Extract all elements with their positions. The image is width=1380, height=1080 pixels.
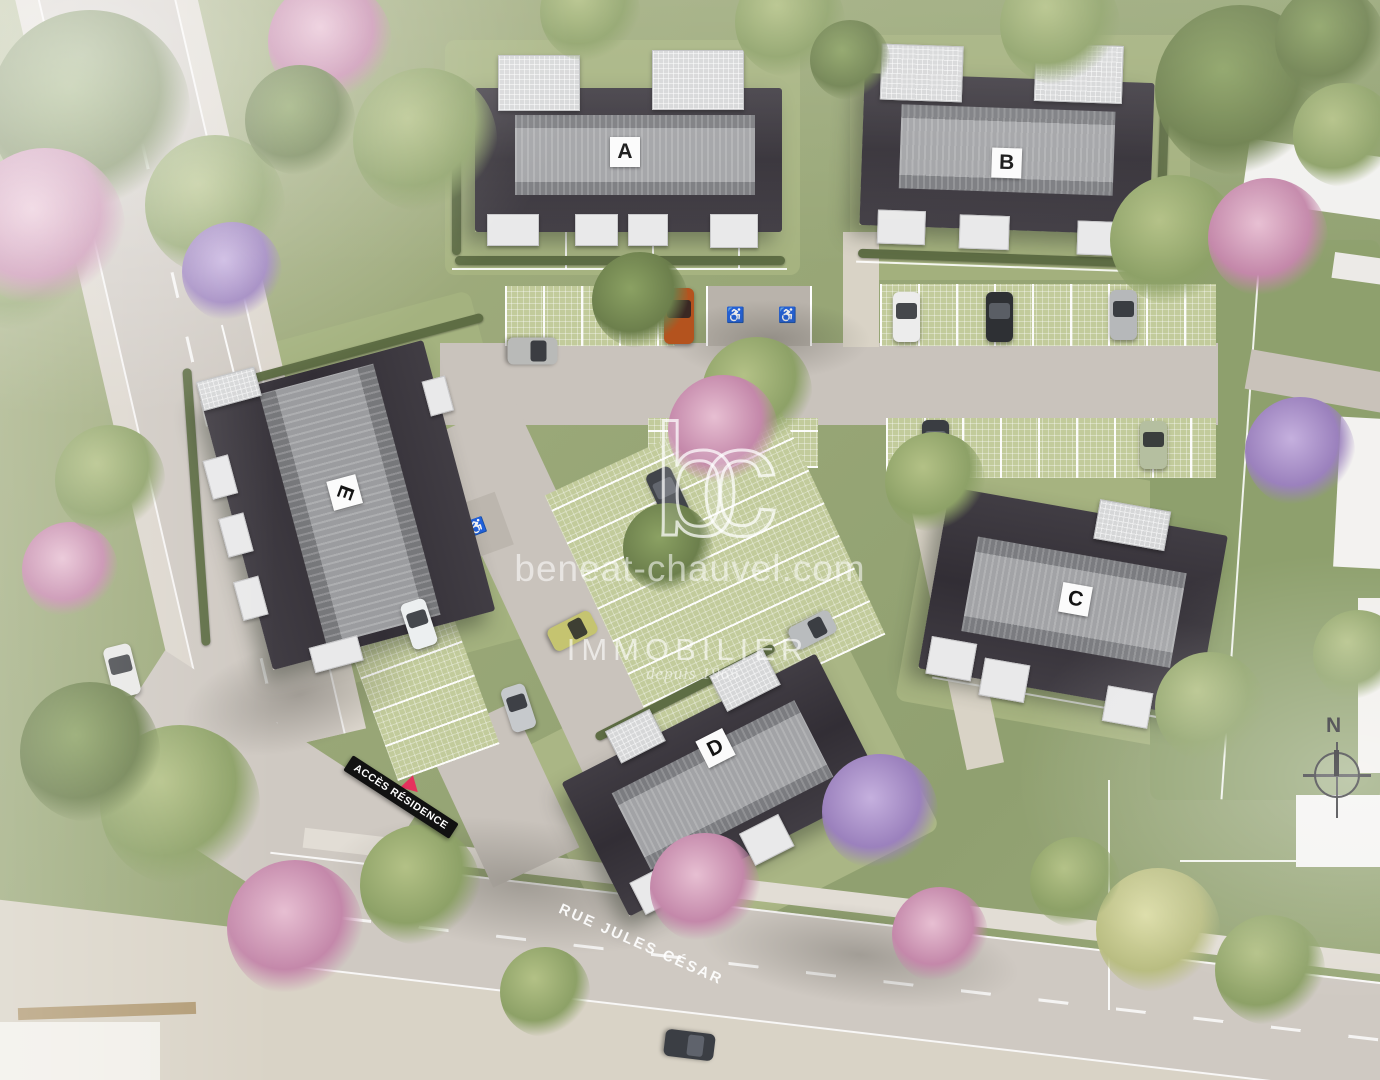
building-b: B bbox=[859, 73, 1154, 235]
tree bbox=[55, 425, 165, 535]
tree bbox=[650, 833, 760, 943]
tree bbox=[1245, 397, 1355, 507]
tree bbox=[20, 682, 160, 822]
building-c-label: C bbox=[1058, 582, 1093, 617]
tree bbox=[592, 252, 688, 348]
compass: N bbox=[1295, 710, 1380, 830]
tree bbox=[822, 754, 938, 870]
tree bbox=[360, 825, 480, 945]
tree bbox=[1030, 837, 1120, 927]
tree bbox=[353, 68, 497, 212]
tree bbox=[22, 522, 118, 618]
tree bbox=[885, 432, 985, 532]
tree bbox=[1208, 178, 1328, 298]
building-d-letter: D bbox=[703, 734, 727, 762]
tree bbox=[182, 222, 282, 322]
patio bbox=[628, 214, 668, 246]
neighbor-roof bbox=[0, 1022, 160, 1080]
building-a: A bbox=[475, 88, 782, 232]
building-e-letter: E bbox=[331, 482, 358, 503]
agency-brand-watermark: IMMOBILIER bbox=[488, 632, 888, 668]
tree bbox=[810, 20, 890, 100]
car bbox=[1140, 421, 1167, 469]
building-b-letter: B bbox=[999, 151, 1015, 176]
car bbox=[986, 292, 1013, 342]
tree bbox=[892, 887, 988, 983]
compass-north-label: N bbox=[1326, 714, 1341, 738]
tree bbox=[245, 65, 355, 175]
patio bbox=[575, 214, 618, 246]
tree bbox=[500, 947, 590, 1037]
tree bbox=[1215, 915, 1325, 1025]
building-a-letter: A bbox=[617, 140, 632, 164]
car bbox=[1110, 290, 1137, 340]
car bbox=[508, 338, 558, 365]
agency-logo: bc bbox=[590, 402, 800, 560]
car bbox=[893, 292, 920, 342]
patio bbox=[877, 210, 926, 246]
compass-needle bbox=[1334, 750, 1339, 776]
site-plan-rendering: ♿ ♿ ♿ A bbox=[0, 0, 1380, 1080]
agency-tagline-watermark: depuis 1965 bbox=[638, 664, 748, 684]
building-c-letter: C bbox=[1066, 586, 1085, 612]
tree bbox=[1155, 652, 1265, 762]
patio bbox=[925, 636, 977, 681]
roof-terrace bbox=[880, 44, 964, 103]
patio bbox=[959, 214, 1010, 250]
patio bbox=[710, 214, 758, 248]
patio bbox=[1102, 685, 1154, 728]
building-b-label: B bbox=[991, 147, 1022, 178]
patio bbox=[487, 214, 539, 246]
building-a-label: A bbox=[610, 137, 640, 167]
roof-terrace bbox=[498, 55, 580, 111]
tree bbox=[227, 860, 363, 996]
agency-website-watermark: beneat-chauvel.com bbox=[460, 548, 920, 590]
roof-terrace bbox=[652, 50, 744, 110]
patio bbox=[978, 658, 1030, 703]
